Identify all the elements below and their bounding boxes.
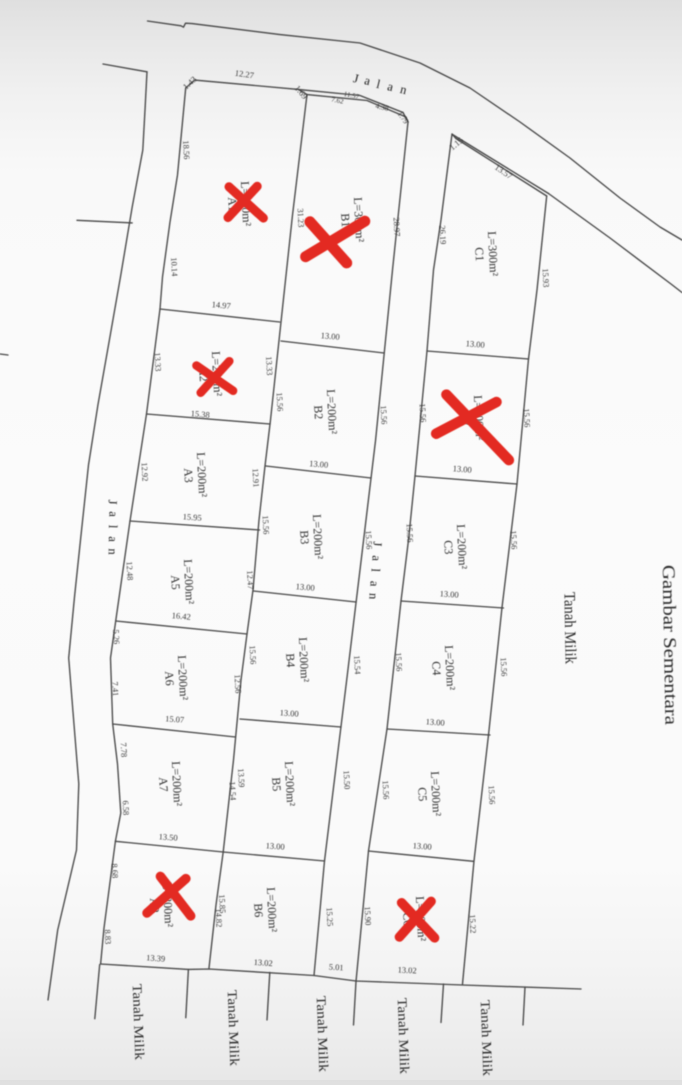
svg-text:13.33: 13.33 [264, 356, 275, 376]
svg-text:7.62: 7.62 [331, 95, 345, 105]
svg-text:15.56: 15.56 [275, 392, 286, 412]
svg-text:l: l [368, 568, 382, 573]
svg-text:A6: A6 [162, 671, 177, 686]
svg-text:15.56: 15.56 [364, 530, 375, 550]
svg-text:15.22: 15.22 [468, 914, 479, 934]
svg-text:13.00: 13.00 [465, 338, 485, 350]
svg-text:J: J [370, 541, 384, 547]
svg-text:15.56: 15.56 [405, 523, 416, 543]
svg-text:26.19: 26.19 [438, 225, 449, 245]
svg-text:31.23: 31.23 [296, 208, 307, 228]
svg-text:A3: A3 [181, 468, 196, 483]
svg-text:J: J [352, 71, 360, 86]
svg-text:1.43: 1.43 [181, 74, 199, 91]
svg-text:n: n [366, 593, 380, 601]
svg-text:7.78: 7.78 [119, 742, 130, 757]
svg-text:16.42: 16.42 [171, 610, 191, 622]
svg-text:Tanah Milik: Tanah Milik [560, 592, 578, 664]
svg-text:15.90: 15.90 [363, 906, 374, 926]
svg-text:a: a [106, 511, 120, 517]
svg-text:13.00: 13.00 [452, 463, 472, 475]
svg-text:18.56: 18.56 [181, 140, 192, 160]
svg-text:12.47: 12.47 [245, 570, 256, 590]
svg-text:13.50: 13.50 [158, 831, 178, 842]
svg-text:12.91: 12.91 [251, 468, 262, 488]
svg-text:Tanah Milik: Tanah Milik [314, 996, 332, 1073]
svg-text:12.48: 12.48 [125, 561, 136, 581]
svg-text:C3: C3 [441, 540, 456, 555]
svg-text:B6: B6 [251, 903, 266, 918]
svg-text:a: a [106, 536, 120, 542]
svg-text:13.00: 13.00 [265, 840, 285, 851]
svg-text:a: a [369, 555, 383, 562]
svg-text:13.02: 13.02 [253, 957, 273, 968]
svg-text:J: J [106, 499, 120, 504]
svg-text:8.83: 8.83 [103, 929, 114, 944]
svg-text:7.41: 7.41 [110, 681, 121, 696]
svg-text:n: n [399, 82, 409, 97]
svg-text:15.50: 15.50 [342, 770, 353, 790]
svg-text:11.57: 11.57 [343, 90, 360, 101]
svg-text:15.56: 15.56 [509, 530, 520, 550]
svg-text:15.25: 15.25 [325, 907, 336, 927]
svg-text:B5: B5 [269, 777, 284, 792]
svg-text:13.57: 13.57 [493, 162, 514, 181]
svg-text:15.56: 15.56 [248, 645, 259, 665]
svg-text:B4: B4 [283, 653, 298, 668]
svg-text:15.56: 15.56 [261, 515, 272, 535]
svg-text:15.54: 15.54 [352, 655, 363, 675]
svg-text:C4: C4 [429, 661, 444, 676]
svg-text:13.33: 13.33 [153, 352, 164, 372]
svg-text:8.68: 8.68 [110, 863, 121, 878]
svg-text:15.56: 15.56 [522, 408, 533, 428]
svg-text:Tanah Milik: Tanah Milik [395, 998, 413, 1075]
svg-text:5.01: 5.01 [328, 962, 344, 973]
svg-text:13.00: 13.00 [309, 458, 329, 470]
svg-text:B2: B2 [311, 405, 326, 420]
svg-text:Tanah Milik: Tanah Milik [130, 984, 148, 1061]
svg-text:1.69: 1.69 [293, 83, 310, 101]
svg-text:a: a [363, 73, 372, 88]
svg-text:13.00: 13.00 [320, 330, 340, 342]
svg-text:C5: C5 [415, 787, 430, 802]
svg-text:15.56: 15.56 [381, 780, 392, 800]
svg-text:28.97: 28.97 [392, 217, 403, 237]
svg-text:15.56: 15.56 [487, 785, 498, 805]
svg-text:l: l [375, 77, 382, 92]
svg-text:Tanah Milik: Tanah Milik [478, 1000, 496, 1077]
svg-text:l: l [106, 525, 120, 529]
svg-text:13.39: 13.39 [146, 952, 166, 963]
svg-text:14.82: 14.82 [214, 908, 225, 928]
svg-text:13.02: 13.02 [397, 965, 417, 976]
svg-text:a: a [367, 581, 381, 588]
svg-text:a: a [386, 79, 395, 94]
svg-text:A5: A5 [168, 575, 183, 590]
svg-text:12.27: 12.27 [234, 68, 254, 81]
svg-text:C1: C1 [472, 247, 487, 262]
svg-text:15.56: 15.56 [499, 657, 510, 677]
svg-text:15.56: 15.56 [379, 405, 390, 425]
svg-text:15.56: 15.56 [394, 652, 405, 672]
svg-text:12.92: 12.92 [140, 462, 151, 482]
svg-text:6.58: 6.58 [121, 800, 132, 815]
svg-text:13.00: 13.00 [425, 716, 445, 727]
svg-text:13.00: 13.00 [279, 707, 299, 718]
svg-text:Gambar Sementara: Gambar Sementara [659, 565, 682, 725]
svg-text:B3: B3 [297, 530, 312, 545]
svg-text:A7: A7 [156, 777, 171, 792]
svg-text:14.54: 14.54 [228, 781, 239, 801]
svg-text:15.56: 15.56 [418, 403, 429, 423]
svg-text:15.38: 15.38 [190, 408, 210, 420]
svg-text:13.00: 13.00 [295, 581, 315, 593]
svg-text:15.93: 15.93 [541, 268, 552, 288]
svg-text:12.56: 12.56 [233, 674, 244, 694]
svg-text:13.00: 13.00 [412, 840, 432, 851]
svg-text:15.07: 15.07 [165, 713, 185, 724]
svg-text:14.97: 14.97 [211, 299, 231, 311]
svg-text:Tanah Milik: Tanah Milik [225, 990, 243, 1067]
svg-text:15.95: 15.95 [182, 511, 202, 522]
svg-text:10.14: 10.14 [169, 257, 180, 277]
svg-text:5.26: 5.26 [111, 629, 122, 644]
svg-text:4.38: 4.38 [375, 101, 390, 113]
svg-text:n: n [106, 548, 120, 555]
svg-text:13.00: 13.00 [439, 588, 459, 599]
